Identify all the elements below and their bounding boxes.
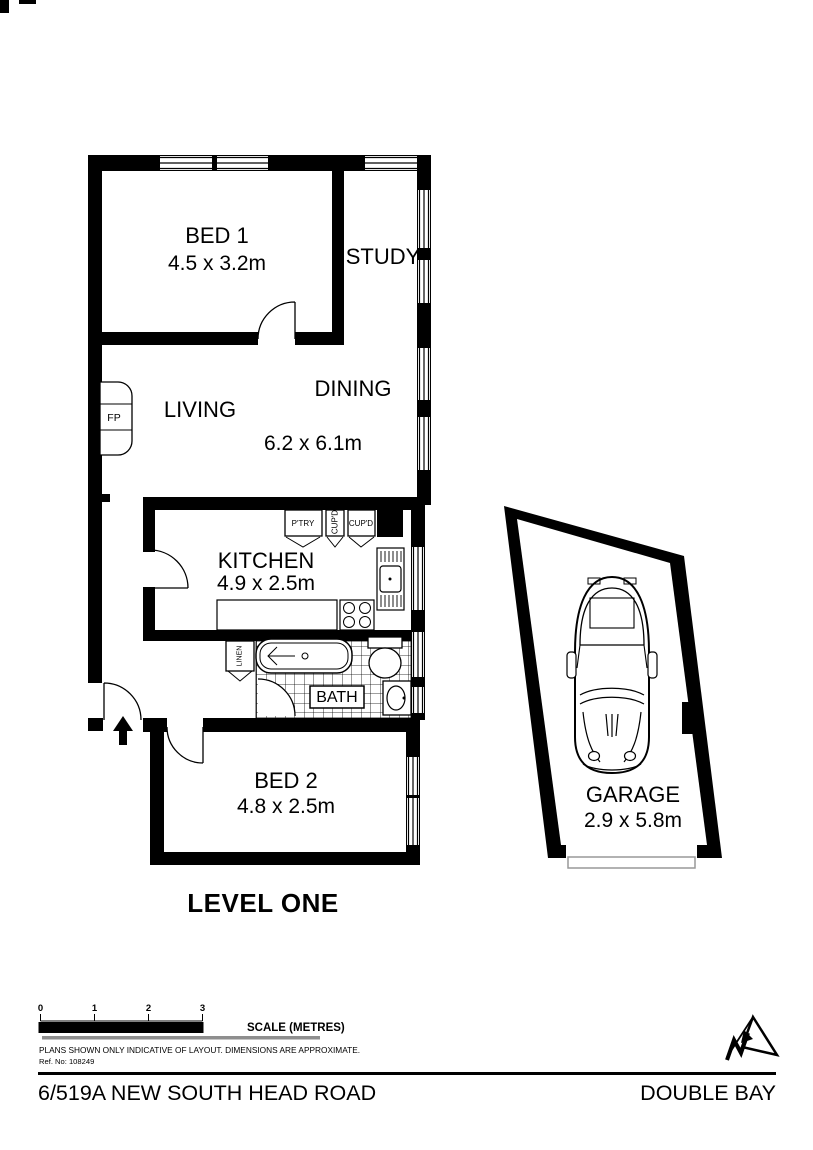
- garage-dims: 2.9 x 5.8m: [584, 809, 682, 832]
- cupboard2-label: CUP'D: [349, 519, 373, 528]
- garage: GARAGE 2.9 x 5.8m: [504, 506, 722, 871]
- notes: PLANS SHOWN ONLY INDICATIVE OF LAYOUT. D…: [39, 1045, 360, 1066]
- study-label: STUDY: [346, 244, 421, 269]
- entry-arrow: [113, 716, 133, 745]
- kitchen-sink: [377, 548, 404, 610]
- reference-number: Ref. No: 108249: [39, 1057, 94, 1066]
- level-title: LEVEL ONE: [187, 888, 338, 918]
- scale-tick-3: 3: [200, 1003, 205, 1014]
- bed1-label: BED 1: [185, 223, 249, 248]
- bath-label-box: BATH: [310, 686, 364, 708]
- bath-label: BATH: [316, 689, 357, 706]
- kitchen-door: [150, 550, 188, 588]
- garage-label: GARAGE: [586, 782, 680, 807]
- floorplan-page: P'TRY CUP'D CUP'D FP: [0, 0, 813, 1150]
- scale-tick-1: 1: [92, 1003, 98, 1014]
- kitchen-counter: [217, 600, 337, 630]
- scale-units-label: SCALE (METRES): [247, 1022, 345, 1034]
- north-arrow-icon: [727, 1017, 777, 1060]
- bed1-door: [258, 302, 295, 339]
- scale-bar: 0 1 2 3 SCALE (METRES): [38, 1003, 345, 1040]
- bed2-label: BED 2: [254, 768, 318, 793]
- footer-address: 6/519A NEW SOUTH HEAD ROAD: [38, 1081, 376, 1105]
- basin: [383, 681, 411, 715]
- kitchen-dims: 4.9 x 2.5m: [217, 572, 315, 595]
- disclaimer-text: PLANS SHOWN ONLY INDICATIVE OF LAYOUT. D…: [39, 1045, 360, 1055]
- linen-label: LINEN: [237, 646, 244, 667]
- pantry-label: P'TRY: [292, 519, 315, 528]
- bed1-dims: 4.5 x 3.2m: [168, 252, 266, 275]
- bathtub: [256, 639, 352, 673]
- footer-suburb: DOUBLE BAY: [640, 1081, 776, 1105]
- living-label: LIVING: [164, 397, 236, 422]
- footer-rule: [38, 1072, 776, 1075]
- car-illustration: [567, 577, 657, 773]
- cupboard1-label: CUP'D: [331, 510, 340, 534]
- divider-line-gray: [42, 1036, 320, 1040]
- scale-tick-0: 0: [38, 1003, 43, 1014]
- fireplace-label: FP: [107, 412, 120, 424]
- cupboards: P'TRY CUP'D CUP'D: [285, 510, 375, 547]
- stove: [340, 600, 374, 630]
- scale-tick-2: 2: [146, 1003, 151, 1014]
- bed2-dims: 4.8 x 2.5m: [237, 795, 335, 818]
- print-artifact: [0, 0, 36, 13]
- bed2-door: [167, 727, 203, 763]
- footer: 6/519A NEW SOUTH HEAD ROAD DOUBLE BAY: [38, 1072, 776, 1105]
- floor-plan-svg: P'TRY CUP'D CUP'D FP: [0, 0, 813, 1150]
- toilet: [368, 637, 402, 678]
- garage-door: [568, 857, 695, 868]
- kitchen-label: KITCHEN: [218, 548, 315, 573]
- fireplace: FP: [100, 382, 132, 455]
- dining-dims: 6.2 x 6.1m: [264, 432, 362, 455]
- linen-closet: LINEN: [226, 641, 254, 681]
- entry-door: [104, 683, 141, 720]
- dining-label: DINING: [315, 376, 392, 401]
